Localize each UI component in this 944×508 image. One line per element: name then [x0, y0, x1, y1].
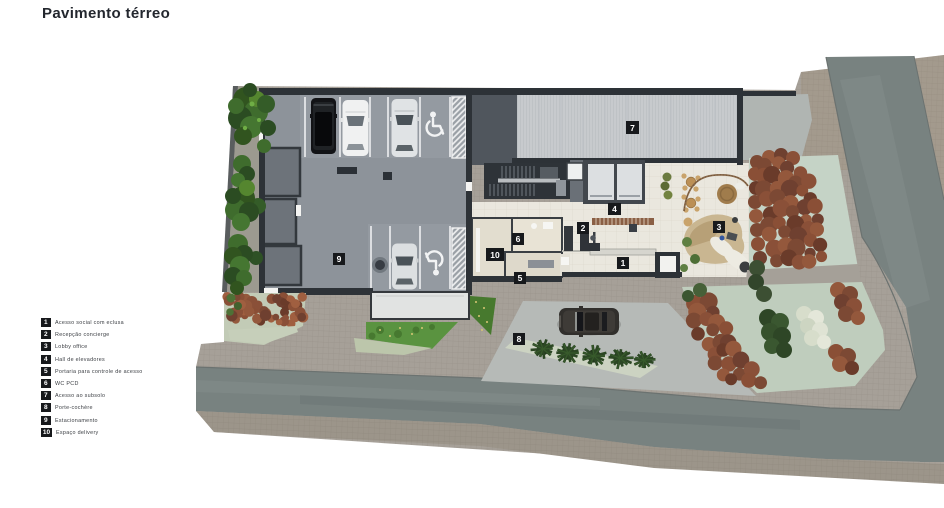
svg-text:5: 5 — [518, 273, 523, 283]
svg-text:6: 6 — [516, 234, 521, 244]
svg-text:2: 2 — [581, 223, 586, 233]
svg-text:3: 3 — [717, 222, 722, 232]
svg-text:4: 4 — [612, 204, 617, 214]
svg-text:9: 9 — [337, 254, 342, 264]
svg-text:1: 1 — [621, 258, 626, 268]
svg-text:8: 8 — [517, 334, 522, 344]
svg-text:10: 10 — [490, 250, 500, 260]
svg-text:7: 7 — [630, 123, 635, 133]
